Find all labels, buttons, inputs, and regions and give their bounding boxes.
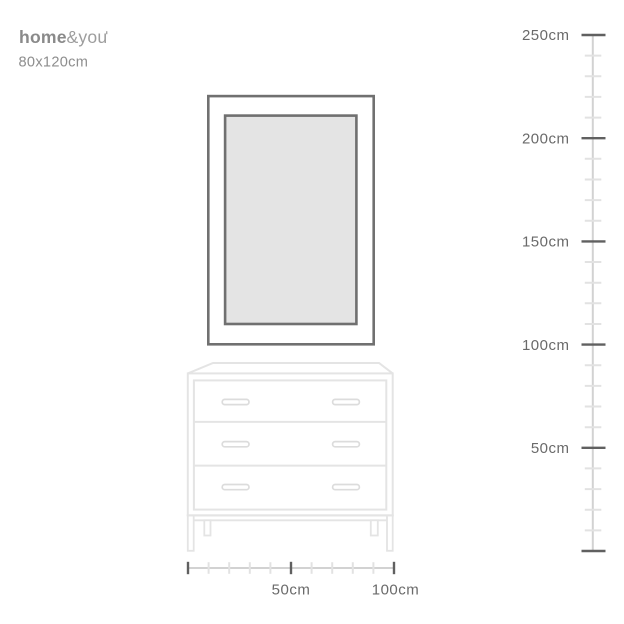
svg-text:200cm: 200cm (522, 130, 570, 147)
svg-text:50cm: 50cm (272, 581, 311, 598)
svg-text:home: home (19, 27, 67, 47)
svg-text:&you: &you (67, 27, 108, 47)
svg-text:100cm: 100cm (522, 337, 570, 354)
svg-text:80x120cm: 80x120cm (19, 55, 89, 71)
svg-text:250cm: 250cm (522, 27, 570, 44)
svg-text:100cm: 100cm (372, 581, 420, 598)
svg-text:50cm: 50cm (531, 440, 570, 457)
svg-text:150cm: 150cm (522, 234, 570, 251)
